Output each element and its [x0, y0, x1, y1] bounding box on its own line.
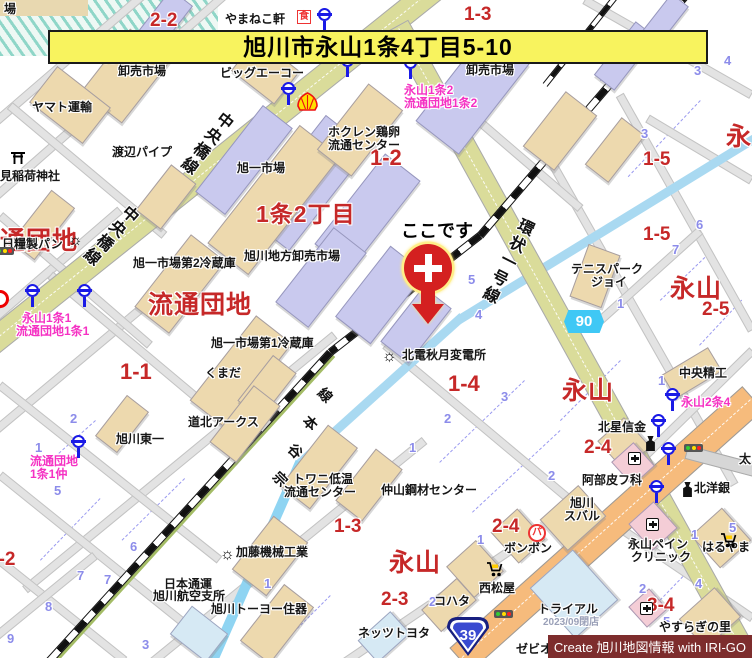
district-label: 3-2: [0, 550, 15, 570]
lot-number-label: 6: [130, 540, 137, 554]
bus-icon: [662, 442, 675, 466]
lot-number-label: 5: [54, 484, 61, 498]
svg-text:39: 39: [460, 627, 477, 644]
district-label: 1-3: [334, 517, 361, 537]
poi-label: 旭川地方卸売市場: [244, 250, 340, 263]
map-credit: Create 旭川地図情報 with IRI-GO: [548, 635, 752, 658]
factory-icon: ☼: [220, 547, 235, 563]
poi-label: ゼビオ: [516, 643, 552, 656]
poi-label: 中央精工: [679, 367, 727, 380]
railway-name-label: 本: [300, 413, 320, 433]
poi-label: 旭一市場第2冷蔵庫: [133, 257, 236, 270]
lot-number-label: 1: [35, 441, 42, 455]
district-label: 1条2丁目: [256, 202, 356, 226]
location-marker: [404, 244, 452, 326]
here-label: ここです: [401, 222, 473, 241]
district-label: 2-4: [584, 438, 611, 458]
poi-label: 見稲荷神社: [0, 170, 60, 183]
poi-label: 2023/09閉店: [543, 618, 599, 629]
lot-number-label: 1: [264, 577, 271, 591]
poi-label: 阿部皮フ科: [582, 474, 642, 487]
busstop-name-label: 永山1条1: [22, 312, 71, 325]
poi-label: 卸売市場: [466, 64, 514, 77]
poi-label: 北洋銀: [694, 482, 730, 495]
bus-icon: [318, 8, 331, 32]
district-label: 2-5: [702, 300, 729, 320]
building: [523, 91, 598, 171]
traffic-icon: [0, 247, 14, 255]
poi-label: 加藤機械工業: [236, 546, 308, 559]
lot-number-label: 3: [694, 64, 701, 78]
poi-label: 西松屋: [479, 582, 515, 595]
map-canvas[interactable]: 旭川市永山1条4丁目5-10 ここです Create 旭川地図情報 with I…: [0, 0, 752, 658]
lot-number-label: 4: [724, 54, 731, 68]
traffic-icon: [494, 610, 513, 618]
route-badge-90: 90: [564, 310, 604, 333]
hospital-icon: [646, 518, 659, 531]
poi-label: 旭一市場第1冷蔵庫: [211, 337, 314, 350]
restaurant-icon: 食: [297, 10, 311, 24]
busstop-name-label: 流通団地: [30, 455, 78, 468]
poi-label: コハタ: [434, 595, 470, 608]
lot-number-label: 6: [696, 218, 703, 232]
poi-label: ジョイ: [591, 276, 627, 289]
poi-label: トライアル: [538, 603, 598, 616]
lot-number-label: 2: [548, 469, 555, 483]
parking-icon: パ: [528, 524, 546, 542]
poi-label: テニスパーク: [571, 263, 643, 276]
poi-label: 旭一市場: [237, 162, 285, 175]
busstop-name-label: 流通団地1条1: [16, 325, 89, 338]
lot-number-label: 2: [639, 582, 646, 596]
poi-label: 永山ペイン: [628, 538, 688, 551]
bank-icon: [645, 436, 656, 451]
busstop-name-label: 永山1条2: [404, 84, 453, 97]
busstop-name-label: 永山2条4: [681, 396, 730, 409]
poi-label: 流通センター: [328, 139, 400, 152]
marker-arrow-icon: [412, 304, 444, 324]
bus-icon: [78, 284, 91, 308]
building: [240, 584, 314, 658]
lot-number-label: 3: [641, 127, 648, 141]
lot-number-label: 2: [70, 412, 77, 426]
poi-label: ヤマト運輸: [32, 101, 92, 114]
hospital-icon: [628, 452, 641, 465]
bus-icon: [282, 82, 295, 106]
lot-number-label: 3: [501, 390, 508, 404]
address-banner: 旭川市永山1条4丁目5-10: [48, 30, 708, 64]
bus-icon: [72, 435, 85, 459]
poi-label: トワニ低温: [293, 473, 353, 486]
district-label: 2-4: [492, 517, 519, 537]
lot-number-label: 7: [672, 243, 679, 257]
bus-icon: [26, 284, 39, 308]
bank-icon: [682, 482, 693, 497]
lot-number-label: 4: [695, 577, 702, 591]
poi-label: 仲山鋼材センター: [381, 484, 477, 497]
poi-label: 道北アークス: [188, 416, 259, 429]
poi-label: 旭川東一: [116, 433, 164, 446]
factory-icon: ☼: [68, 233, 83, 249]
lot-number-label: 3: [142, 638, 149, 652]
bus-icon: [666, 388, 679, 412]
district-label: 流通団地: [148, 292, 252, 318]
poi-label: 北星信金: [598, 421, 646, 434]
lot-number-label: 1: [617, 297, 624, 311]
district-label: 1-1: [120, 360, 152, 383]
poi-label: 旭川航空支所: [153, 590, 225, 603]
lot-number-label: 7: [77, 569, 84, 583]
lot-number-label: 8: [45, 600, 52, 614]
lot-number-label: 2: [444, 412, 451, 426]
lot-number-label: 1: [658, 374, 665, 388]
poi-label: スバル: [564, 510, 600, 523]
traffic-icon: [684, 444, 703, 452]
bus-icon: [652, 414, 665, 438]
poi-label: 渡辺パイプ: [112, 146, 172, 159]
poi-label: 北電秋月変電所: [402, 349, 486, 362]
busstop-name-label: 流通団地1条2: [404, 97, 477, 110]
poi-label: ボンボン: [504, 542, 552, 555]
lot-number-label: 7: [104, 573, 111, 587]
poi-label: くまだ: [205, 367, 241, 380]
district-label: 1-4: [448, 372, 480, 395]
factory-icon: ☼: [382, 349, 397, 365]
lot-number-label: 5: [468, 273, 475, 287]
poi-label: 流通センター: [284, 486, 356, 499]
busstop-name-label: 1条1仲: [30, 468, 67, 481]
district-label: 1-3: [464, 5, 491, 25]
poi-label: ホクレン鶏卵: [328, 126, 400, 139]
district-label: 2-3: [381, 590, 408, 610]
lot-number-label: 1: [477, 533, 484, 547]
lot-number-label: 4: [475, 308, 482, 322]
poi-label: ネッツトヨタ: [358, 627, 430, 640]
lot-number-label: 1: [691, 528, 698, 542]
lot-number-label: 9: [7, 632, 14, 646]
district-label: 1-5: [643, 150, 670, 170]
poi-label: 卸売市場: [118, 65, 166, 78]
poi-label: やすらぎの里: [659, 621, 731, 634]
district-label: 永山: [389, 550, 441, 576]
district-label: 永: [726, 124, 752, 150]
district-label: 1-5: [643, 225, 670, 245]
poi-label: ビッグエーコー: [220, 67, 304, 80]
poi-label: 場: [4, 3, 16, 16]
lot-number-label: 1: [409, 441, 416, 455]
district-label: 2-2: [150, 11, 177, 31]
poi-label: やまねこ軒: [225, 13, 285, 26]
poi-label: 旭川: [570, 497, 594, 510]
poi-label: 太: [739, 453, 751, 466]
hospital-icon: [640, 602, 653, 615]
poi-label: クリニック: [631, 551, 691, 564]
poi-label: 旭川トーヨー住器: [211, 603, 307, 616]
district-label: 永山: [562, 378, 614, 404]
bus-icon: [650, 480, 663, 504]
railway-name-label: 線: [315, 385, 335, 405]
